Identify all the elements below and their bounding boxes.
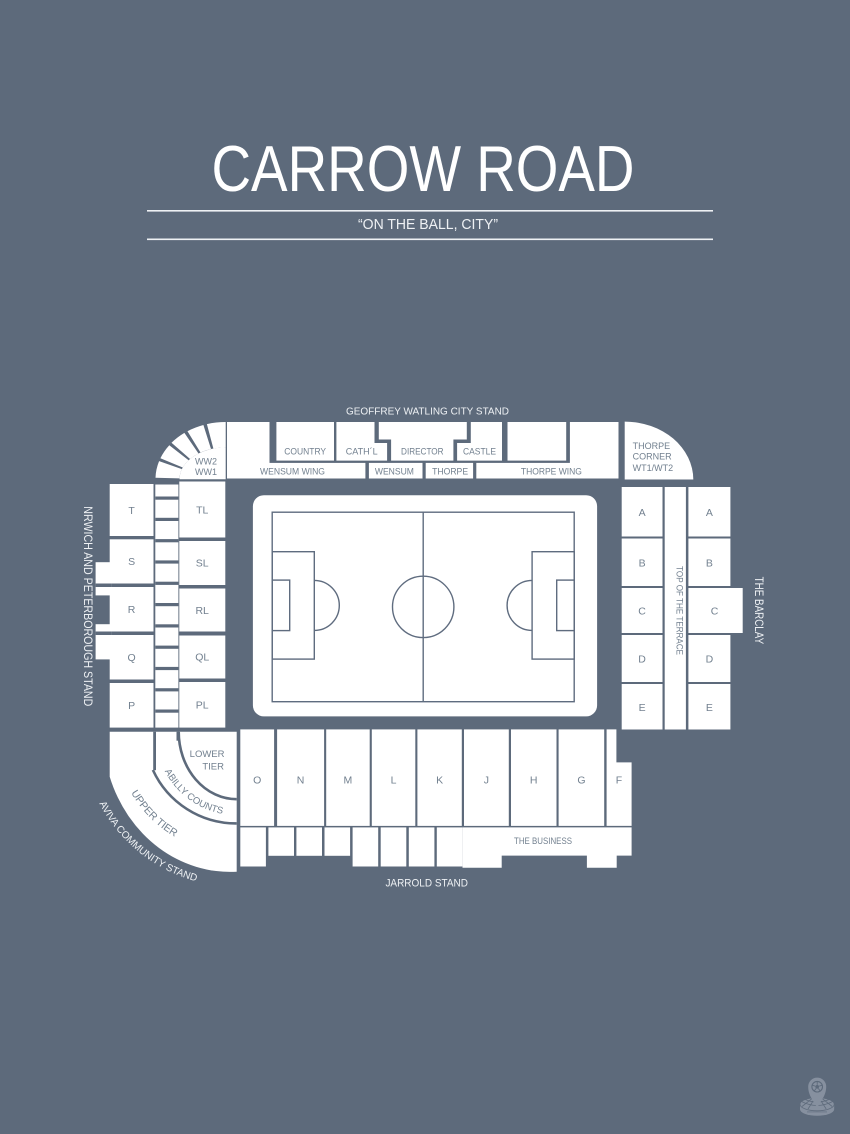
svg-text:TL: TL	[196, 505, 208, 517]
svg-text:CASTLE: CASTLE	[463, 447, 496, 457]
svg-text:WW1: WW1	[195, 467, 217, 477]
svg-text:R: R	[128, 604, 136, 616]
svg-text:NRWICH AND PETERBOROUGH STAND: NRWICH AND PETERBOROUGH STAND	[81, 506, 95, 706]
svg-text:A: A	[706, 507, 713, 519]
svg-text:S: S	[128, 556, 135, 568]
svg-text:THORPE: THORPE	[432, 467, 468, 477]
svg-text:F: F	[616, 775, 622, 787]
svg-text:WW2: WW2	[195, 457, 217, 467]
svg-text:CATH´L: CATH´L	[346, 447, 378, 457]
svg-text:GEOFFREY WATLING CITY STAND: GEOFFREY WATLING CITY STAND	[346, 406, 509, 418]
svg-text:THE BUSINESS: THE BUSINESS	[514, 836, 572, 846]
svg-text:Q: Q	[128, 652, 136, 664]
svg-text:SL: SL	[196, 558, 209, 570]
svg-text:CORNER: CORNER	[633, 452, 673, 462]
svg-text:B: B	[639, 557, 646, 569]
svg-text:RL: RL	[195, 605, 209, 617]
svg-text:DIRECTOR: DIRECTOR	[401, 447, 444, 457]
svg-text:D: D	[638, 654, 646, 666]
svg-text:E: E	[639, 702, 646, 714]
svg-text:“ON THE BALL, CITY”: “ON THE BALL, CITY”	[358, 216, 498, 233]
svg-text:THORPE: THORPE	[633, 441, 671, 451]
svg-text:A: A	[639, 507, 646, 519]
svg-text:B: B	[706, 557, 713, 569]
svg-text:JARROLD STAND: JARROLD STAND	[385, 878, 468, 890]
svg-text:N: N	[297, 775, 305, 787]
svg-text:WT1/WT2: WT1/WT2	[633, 463, 674, 473]
svg-text:L: L	[391, 775, 397, 787]
svg-text:H: H	[530, 775, 538, 787]
svg-text:THE BARCLAY: THE BARCLAY	[752, 577, 766, 645]
svg-text:PL: PL	[196, 700, 209, 712]
svg-text:M: M	[344, 775, 353, 787]
svg-text:LOWER: LOWER	[190, 749, 225, 760]
svg-text:K: K	[436, 775, 443, 787]
svg-text:QL: QL	[195, 652, 209, 664]
svg-text:WENSUM WING: WENSUM WING	[260, 467, 325, 477]
svg-text:G: G	[577, 775, 585, 787]
svg-text:O: O	[253, 775, 261, 787]
svg-text:E: E	[706, 702, 713, 714]
svg-text:WENSUM: WENSUM	[375, 467, 414, 477]
svg-text:P: P	[128, 700, 135, 712]
svg-text:CARROW ROAD: CARROW ROAD	[212, 132, 635, 205]
svg-text:C: C	[638, 606, 646, 618]
svg-text:C: C	[711, 606, 719, 618]
svg-text:T: T	[128, 505, 135, 517]
svg-text:TOP OF THE TERRACE: TOP OF THE TERRACE	[673, 566, 684, 655]
svg-text:D: D	[706, 654, 714, 666]
svg-text:COUNTRY: COUNTRY	[284, 447, 326, 457]
svg-text:J: J	[484, 775, 489, 787]
svg-text:THORPE WING: THORPE WING	[521, 467, 582, 477]
svg-text:TIER: TIER	[202, 762, 224, 773]
